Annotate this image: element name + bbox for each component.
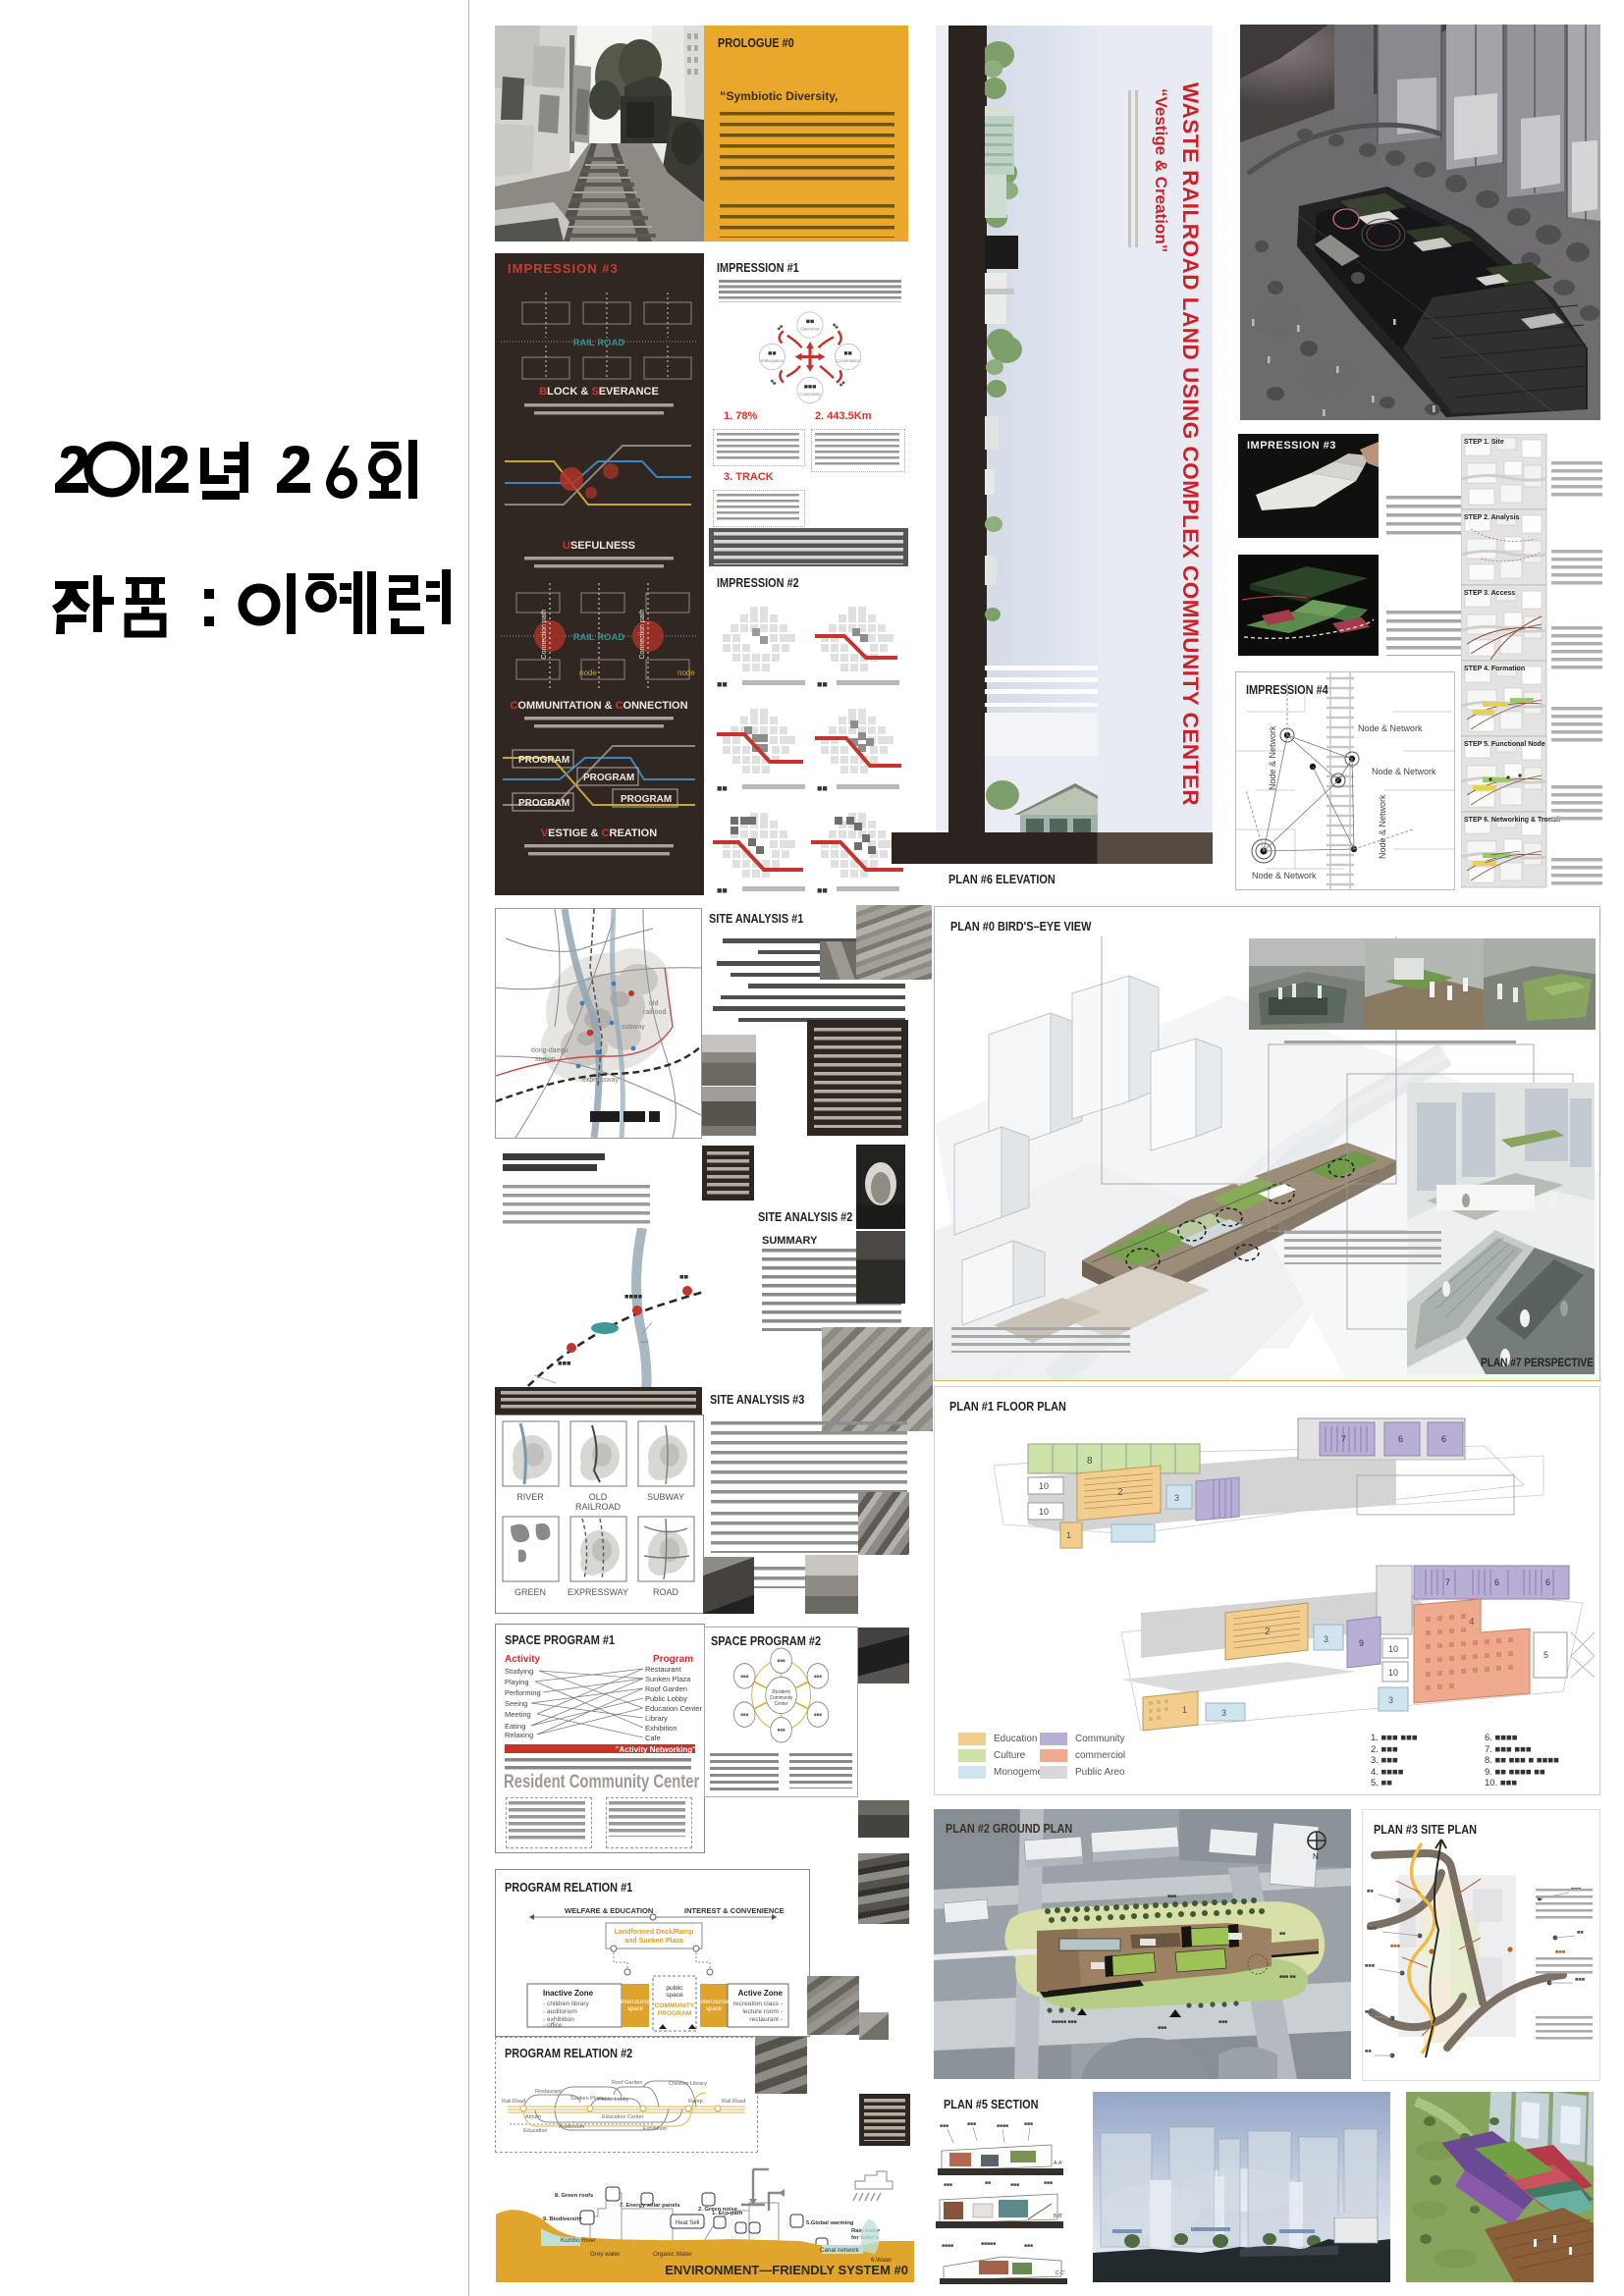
- svg-text:■■: ■■: [806, 318, 814, 325]
- svg-text:Grey water: Grey water: [590, 2251, 620, 2258]
- svg-text:1: 1: [1182, 1705, 1187, 1715]
- svg-text:Node & Network: Node & Network: [1252, 871, 1317, 881]
- svg-text:1. Eco-path: 1. Eco-path: [712, 2211, 743, 2216]
- svg-text:■■: ■■: [843, 350, 851, 357]
- svg-text:5: 5: [1543, 1650, 1548, 1660]
- svg-text:COMMUNITY: COMMUNITY: [655, 2002, 695, 2009]
- svg-text:■■: ■■: [769, 378, 778, 387]
- svg-text:Canal network: Canal network: [820, 2247, 859, 2254]
- svg-text:8. Green roofs: 8. Green roofs: [555, 2193, 593, 2199]
- svg-text:■■■■■ ■■■: ■■■■■ ■■■: [1052, 2019, 1077, 2025]
- svg-text:2: 2: [1117, 1487, 1123, 1498]
- svg-text:Heat Sell: Heat Sell: [676, 2220, 699, 2226]
- svg-text:4: 4: [1469, 1617, 1475, 1628]
- svg-text:6: 6: [1494, 1577, 1499, 1587]
- svg-text:■■: ■■: [985, 2180, 991, 2186]
- svg-text:10: 10: [1388, 1668, 1398, 1678]
- svg-text:space: space: [666, 1992, 683, 1999]
- svg-text:Rail Road: Rail Road: [722, 2099, 745, 2105]
- svg-text:STEP 2. Analysis: STEP 2. Analysis: [1464, 514, 1520, 521]
- svg-text:■■■: ■■■: [944, 2182, 952, 2188]
- svg-text:ROAD: ROAD: [653, 1587, 679, 1597]
- svg-text:■■: ■■: [1365, 2049, 1372, 2055]
- svg-text:RAILROAD: RAILROAD: [575, 1502, 622, 1512]
- svg-text:PROGRAM: PROGRAM: [518, 798, 569, 809]
- svg-text:■■■: ■■■: [1158, 2025, 1166, 2031]
- svg-text:1: 1: [1066, 1530, 1071, 1540]
- svg-text:6: 6: [1398, 1434, 1403, 1444]
- svg-text:■■: ■■: [717, 783, 728, 793]
- svg-text:Meeting: Meeting: [505, 1710, 531, 1719]
- svg-text:Conversation: Conversation: [836, 358, 861, 363]
- svg-text:3: 3: [1174, 1493, 1179, 1503]
- svg-text:■■■: ■■■: [1024, 2243, 1033, 2249]
- svg-text:Exhibition: Exhibition: [645, 1724, 677, 1733]
- svg-text:node: node: [579, 668, 597, 677]
- svg-text:10: 10: [1039, 1507, 1049, 1517]
- svg-text:■■■■: ■■■■: [942, 2243, 953, 2249]
- svg-text:and Sunken Plaza: and Sunken Plaza: [624, 1938, 683, 1945]
- svg-text:Public Lobby: Public Lobby: [645, 1694, 687, 1703]
- svg-text:STEP 4. Formation: STEP 4. Formation: [1464, 666, 1525, 672]
- svg-text:USEFULNESS: USEFULNESS: [563, 540, 635, 552]
- svg-text:■■■: ■■■: [1390, 1944, 1401, 1949]
- svg-text:Education Center: Education Center: [602, 2114, 644, 2120]
- svg-text:Restaurant: Restaurant: [535, 2089, 562, 2095]
- svg-text:Studying: Studying: [505, 1667, 533, 1676]
- svg-text:Auditorium: Auditorium: [559, 2124, 585, 2130]
- svg-text:2: 2: [1265, 1627, 1271, 1637]
- svg-text:PROGRAM: PROGRAM: [518, 755, 569, 766]
- svg-text:■■: ■■: [1367, 1889, 1374, 1895]
- svg-text:- children library: - children library: [543, 2001, 590, 2007]
- svg-text:Atrium: Atrium: [525, 2114, 541, 2120]
- svg-text:Performing: Performing: [505, 1688, 541, 1697]
- svg-text:■■: ■■: [768, 350, 776, 357]
- svg-text:Playing: Playing: [505, 1678, 529, 1686]
- svg-text:5.Global warming: 5.Global warming: [806, 2220, 854, 2226]
- svg-text:RAIL ROAD: RAIL ROAD: [573, 632, 625, 643]
- svg-text:STEP 6. Networking & Tronsf.: STEP 6. Networking & Tronsf.: [1464, 817, 1560, 824]
- svg-text:■■: ■■: [1279, 1931, 1285, 1937]
- svg-text:■■■: ■■■: [804, 384, 817, 391]
- svg-text:COMMUNITATION & CONNECTION: COMMUNITATION & CONNECTION: [510, 700, 687, 712]
- svg-text:6: 6: [1545, 1577, 1550, 1587]
- svg-text:dong-daegu: dong-daegu: [531, 1047, 568, 1054]
- svg-text:■■■: ■■■: [1555, 1949, 1566, 1955]
- svg-text:Education: Education: [523, 2128, 547, 2134]
- svg-text:Education Center: Education Center: [645, 1704, 702, 1713]
- svg-text:public: public: [666, 1985, 683, 1992]
- svg-text:VESTIGE & CREATION: VESTIGE & CREATION: [541, 828, 657, 839]
- svg-text:Exhibition: Exhibition: [643, 2126, 667, 2132]
- svg-text:3: 3: [1324, 1634, 1328, 1644]
- svg-text:node: node: [677, 668, 695, 677]
- svg-text:Seeing: Seeing: [505, 1699, 527, 1708]
- svg-text:■■■: ■■■: [1365, 1963, 1376, 1969]
- svg-text:Active Zone: Active Zone: [738, 1989, 784, 1998]
- svg-text:8: 8: [1087, 1456, 1093, 1467]
- svg-text:Children Library: Children Library: [669, 2081, 707, 2087]
- svg-text:6: 6: [1441, 1434, 1446, 1444]
- svg-text:■■: ■■: [679, 1272, 689, 1281]
- svg-text:7. Energy solar panels: 7. Energy solar panels: [620, 2203, 680, 2209]
- svg-text:Connection path: Connection path: [541, 609, 548, 659]
- svg-text:7: 7: [1445, 1577, 1450, 1587]
- svg-text:STEP 1. Site: STEP 1. Site: [1464, 439, 1504, 446]
- svg-text:space: space: [706, 2006, 723, 2012]
- svg-text:railrood: railrood: [643, 1009, 666, 1016]
- svg-text:■■: ■■: [831, 322, 839, 331]
- svg-text:■■■■■: ■■■■■: [981, 2241, 996, 2247]
- svg-text:WELFARE & EDUCATION: WELFARE & EDUCATION: [565, 1906, 653, 1915]
- svg-text:OLD: OLD: [589, 1492, 608, 1502]
- svg-text:■■: ■■: [717, 679, 728, 689]
- svg-text:ENVIRONMENT—FRIENDLY SYSTEM #0: ENVIRONMENT—FRIENDLY SYSTEM #0: [665, 2263, 908, 2277]
- svg-text:Landformed Deck/Ramp: Landformed Deck/Ramp: [615, 1929, 694, 1936]
- svg-text:■■■■: ■■■■: [624, 1292, 643, 1301]
- svg-text:■■■: ■■■: [778, 1659, 785, 1664]
- svg-text:7: 7: [1341, 1434, 1346, 1444]
- svg-text:10: 10: [1388, 1644, 1398, 1654]
- svg-text:Node & Network: Node & Network: [1372, 767, 1436, 776]
- svg-text:Cafe: Cafe: [645, 1734, 661, 1742]
- svg-text:Rail Road: Rail Road: [502, 2099, 525, 2105]
- svg-text:3: 3: [1221, 1708, 1226, 1718]
- svg-text:RAIL ROAD: RAIL ROAD: [573, 338, 625, 348]
- svg-text:Participation: Participation: [761, 358, 785, 363]
- svg-text:Eating: Eating: [505, 1722, 525, 1731]
- svg-text:Roof Garden: Roof Garden: [645, 1684, 687, 1693]
- svg-text:Openness: Openness: [800, 326, 819, 331]
- svg-text:Connection path: Connection path: [639, 609, 646, 659]
- svg-text:Organic Water: Organic Water: [653, 2251, 692, 2258]
- svg-text:BLOCK & SEVERANCE: BLOCK & SEVERANCE: [539, 386, 659, 398]
- svg-text:■■■: ■■■: [1010, 2182, 1019, 2188]
- svg-text:intercourse: intercourse: [699, 2000, 729, 2005]
- svg-text:■■: ■■: [717, 885, 728, 895]
- svg-text:■■■: ■■■: [1367, 1926, 1378, 1932]
- svg-text:■■■: ■■■: [1575, 1977, 1586, 1983]
- svg-text:SUBWAY: SUBWAY: [647, 1492, 684, 1502]
- svg-text:space: space: [627, 2006, 644, 2012]
- svg-text:■■■: ■■■: [1167, 1894, 1176, 1899]
- svg-text:N: N: [1313, 1852, 1319, 1861]
- svg-text:expressway: expressway: [582, 1077, 619, 1084]
- svg-text:STEP 3. Access: STEP 3. Access: [1464, 590, 1515, 597]
- svg-text:recreation class -: recreation class -: [733, 2001, 783, 2007]
- svg-text:RIVER: RIVER: [516, 1492, 544, 1502]
- svg-text:■■■: ■■■: [1044, 2180, 1053, 2186]
- svg-text:old: old: [649, 1000, 658, 1007]
- svg-text:Kumho River: Kumho River: [561, 2237, 596, 2244]
- svg-text:■■■: ■■■: [967, 2121, 976, 2127]
- svg-text:■■■: ■■■: [814, 1713, 822, 1718]
- svg-text:station: station: [535, 1056, 556, 1063]
- svg-text:Sunken Plaza: Sunken Plaza: [645, 1675, 691, 1683]
- svg-text:■■■: ■■■: [1024, 2121, 1033, 2127]
- svg-text:■■: ■■: [817, 885, 828, 895]
- svg-text:intercourse: intercourse: [621, 2000, 650, 2005]
- svg-text:lecture room -: lecture room -: [742, 2008, 783, 2015]
- svg-text:A-A': A-A': [1054, 2161, 1062, 2166]
- svg-text:■■: ■■: [817, 679, 828, 689]
- svg-text:PROGRAM: PROGRAM: [583, 773, 634, 783]
- svg-text:Center: Center: [775, 1700, 788, 1706]
- svg-text:■■■: ■■■: [558, 1359, 571, 1367]
- svg-text:■■: ■■: [1577, 1930, 1584, 1936]
- svg-text:■■■: ■■■: [1218, 2019, 1227, 2025]
- svg-text:Node & Network: Node & Network: [1378, 794, 1387, 859]
- svg-text:3: 3: [1388, 1695, 1393, 1705]
- svg-text:Community: Community: [799, 392, 821, 397]
- svg-text:PROGRAM: PROGRAM: [621, 794, 672, 805]
- svg-text:9. Biodiversity: 9. Biodiversity: [543, 2216, 582, 2222]
- svg-text:B-B': B-B': [1054, 2214, 1062, 2219]
- svg-text:Inactive Zone: Inactive Zone: [543, 1989, 594, 1998]
- svg-text:STEP 5. Functional Node: STEP 5. Functional Node: [1464, 741, 1545, 748]
- svg-text:Roof Garden: Roof Garden: [612, 2080, 643, 2086]
- svg-text:■■■: ■■■: [740, 1713, 748, 1718]
- svg-text:GREEN: GREEN: [514, 1587, 546, 1597]
- svg-text:■■■: ■■■: [778, 1729, 785, 1734]
- svg-text:■■■: ■■■: [740, 1675, 748, 1680]
- svg-text:■■■■: ■■■■: [997, 2123, 1008, 2129]
- svg-text:Restaurant: Restaurant: [645, 1666, 682, 1674]
- svg-text:subway: subway: [622, 1024, 645, 1031]
- svg-text:■■■: ■■■: [814, 1675, 822, 1680]
- svg-text:- auditorium: - auditorium: [543, 2008, 577, 2015]
- svg-text:restaurant -: restaurant -: [749, 2016, 783, 2023]
- svg-text:10: 10: [1039, 1481, 1049, 1491]
- svg-text:■■■ ■■: ■■■ ■■: [1279, 1974, 1296, 1980]
- svg-text:9: 9: [1359, 1638, 1364, 1648]
- svg-text:■■■: ■■■: [940, 2123, 948, 2129]
- svg-text:- office: - office: [543, 2022, 563, 2029]
- svg-text:Public Lobby: Public Lobby: [598, 2097, 629, 2103]
- svg-text:Relaxing: Relaxing: [505, 1731, 533, 1739]
- svg-text:▪▪▪▪: ▪▪▪▪: [640, 1340, 649, 1346]
- svg-text:C-C': C-C': [1056, 2270, 1065, 2276]
- svg-text:Ramp: Ramp: [688, 2099, 703, 2105]
- svg-text:INTEREST & CONVENIENCE: INTEREST & CONVENIENCE: [684, 1906, 785, 1915]
- svg-text:■■: ■■: [1365, 2009, 1372, 2015]
- svg-text:■■: ■■: [817, 783, 828, 793]
- svg-text:PROGRAM: PROGRAM: [658, 2010, 692, 2017]
- svg-text:EXPRESSWAY: EXPRESSWAY: [568, 1587, 628, 1597]
- svg-text:Node & Network: Node & Network: [1268, 725, 1277, 790]
- svg-text:Library: Library: [645, 1714, 668, 1723]
- svg-text:Node & Network: Node & Network: [1358, 723, 1423, 733]
